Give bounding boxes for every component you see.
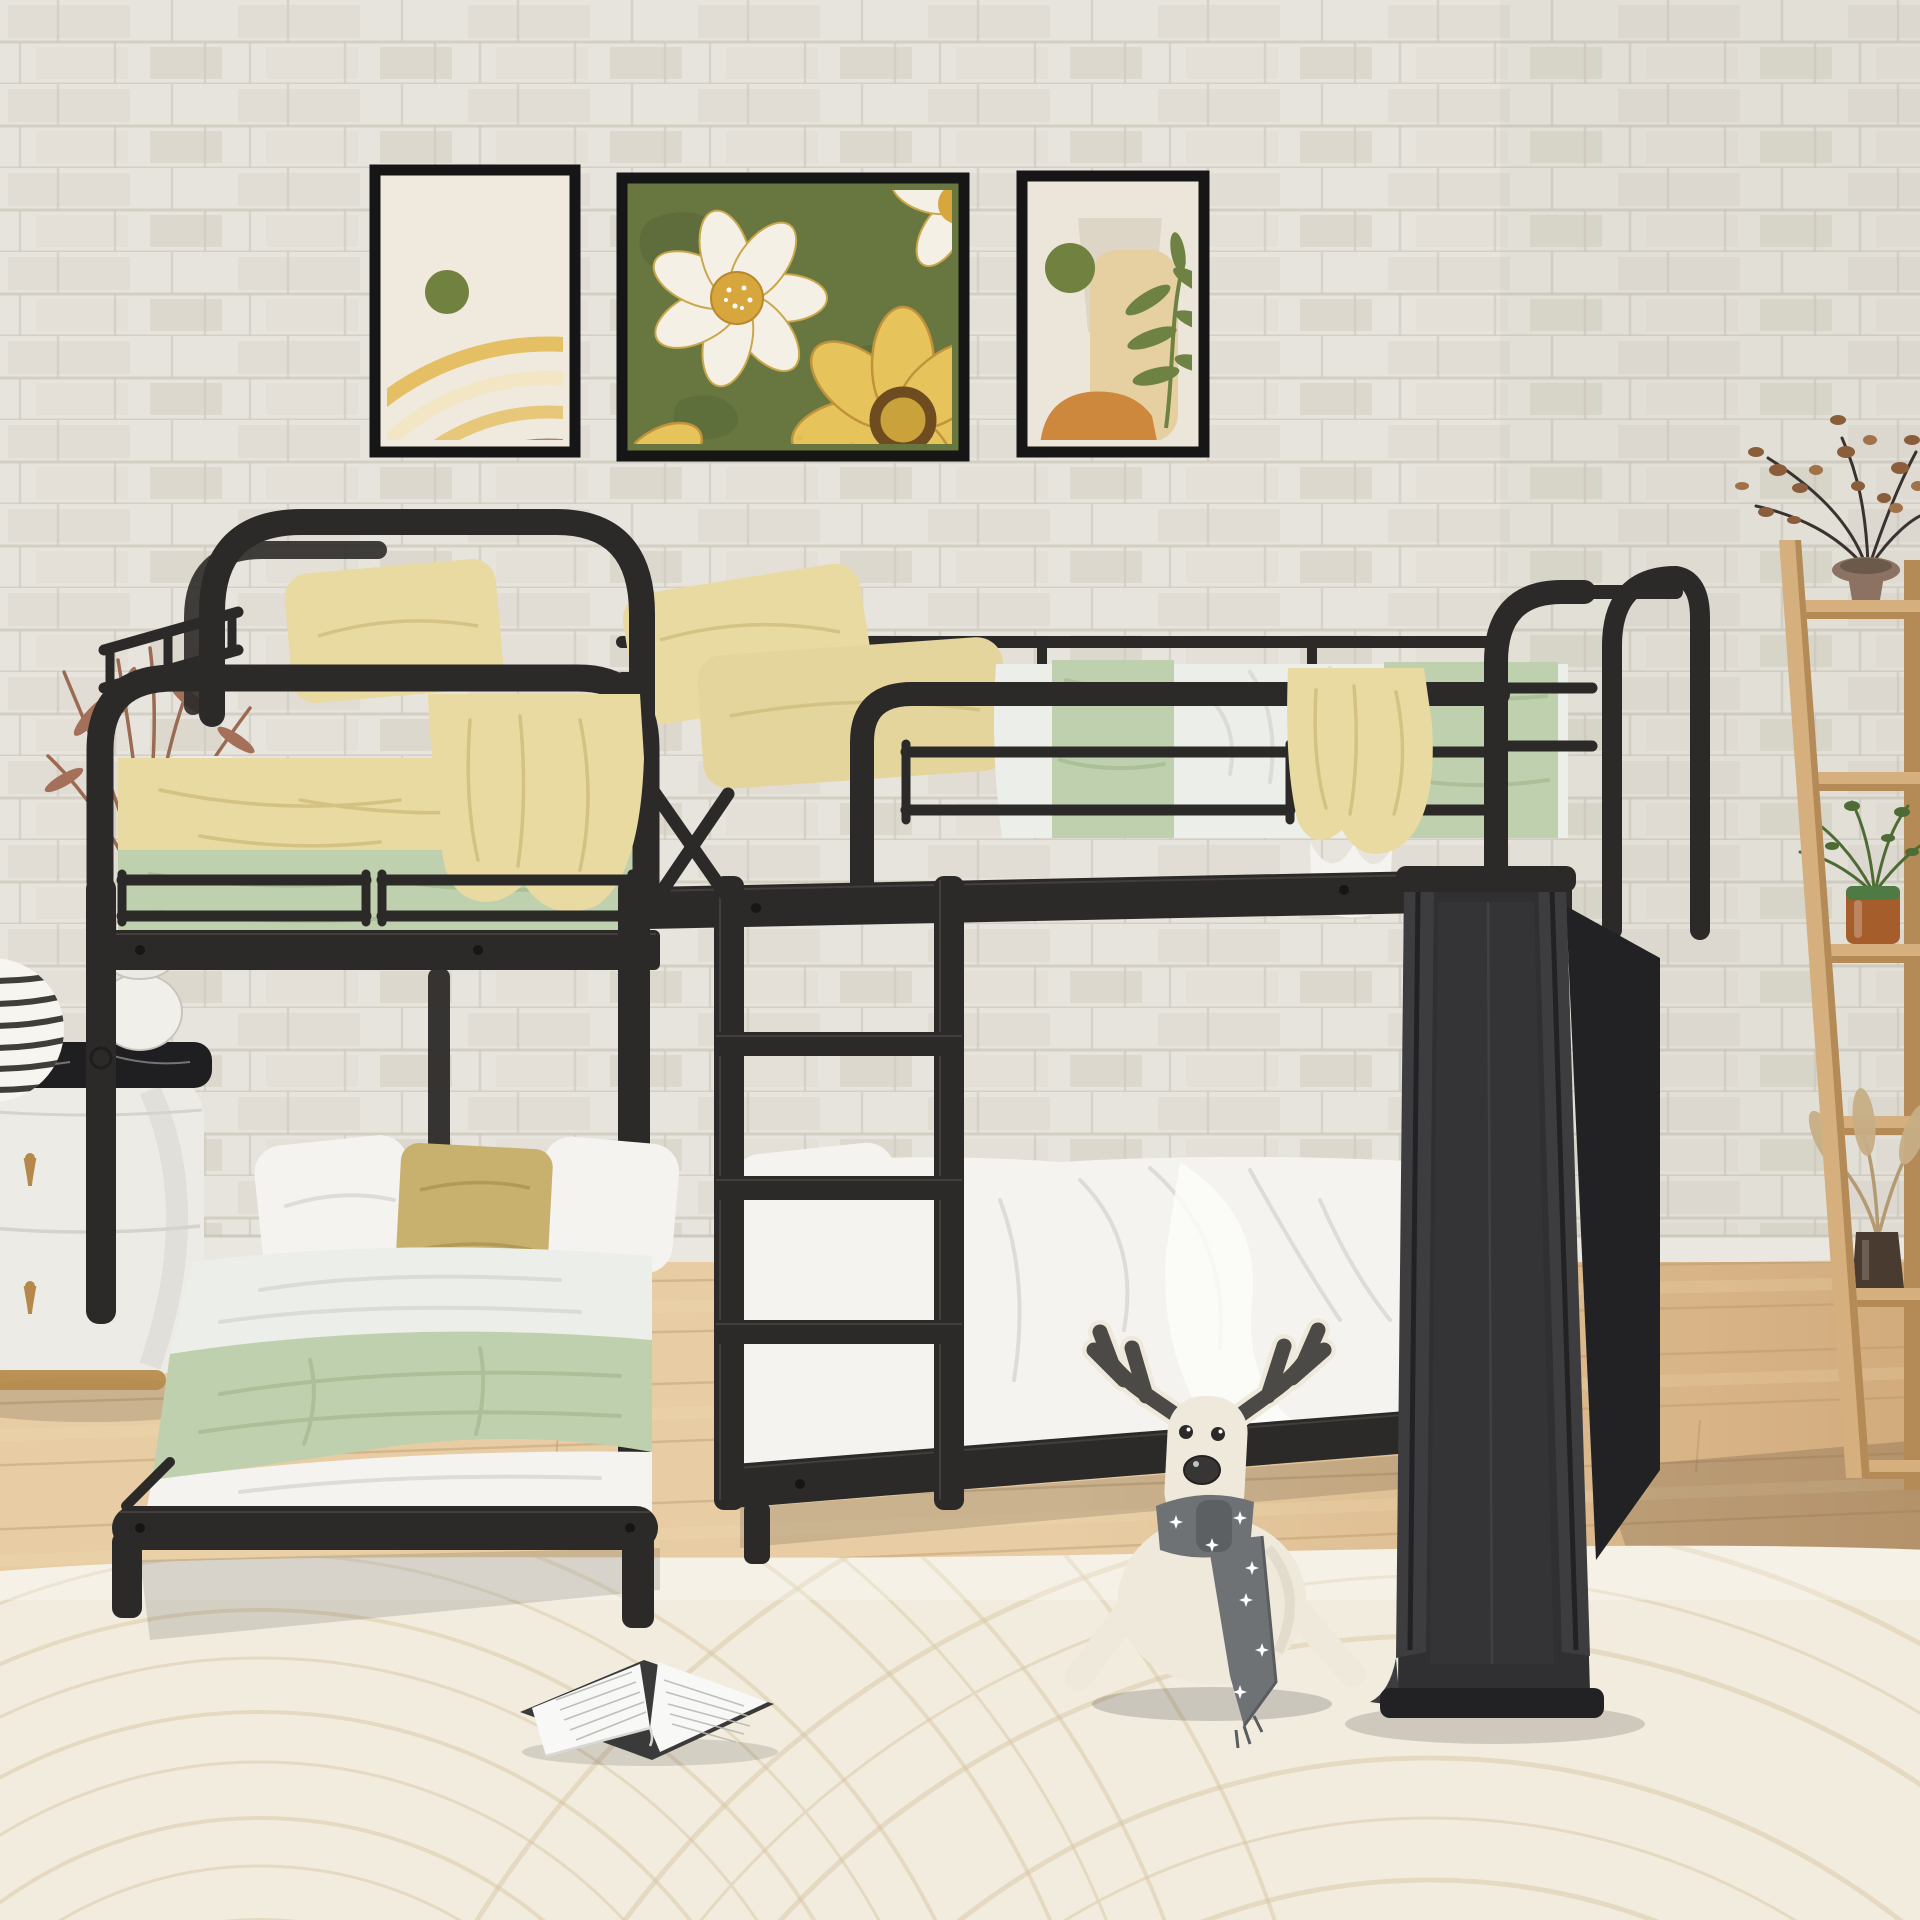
slide-top-mount [1396, 866, 1576, 892]
art-frame-botanical [1022, 176, 1227, 453]
product-photo [0, 0, 1920, 1920]
art3-green-dot [1045, 243, 1095, 293]
left-lower-leg-right [622, 1532, 654, 1628]
art1-green-dot [425, 270, 469, 314]
bedroom-scene [0, 0, 1920, 1920]
deer-nose [1184, 1456, 1220, 1484]
left-front-post [86, 876, 116, 1324]
left-lower-leg-left [112, 1532, 142, 1618]
left-upper-platform [92, 930, 660, 970]
deer-eye-right [1211, 1427, 1225, 1441]
left-lower-mattress [142, 1247, 652, 1534]
deer-eye-left [1179, 1425, 1193, 1439]
slide-exit-lip [1380, 1688, 1604, 1718]
right-lower-leg [744, 1502, 770, 1564]
nightstand-base [0, 1370, 166, 1390]
